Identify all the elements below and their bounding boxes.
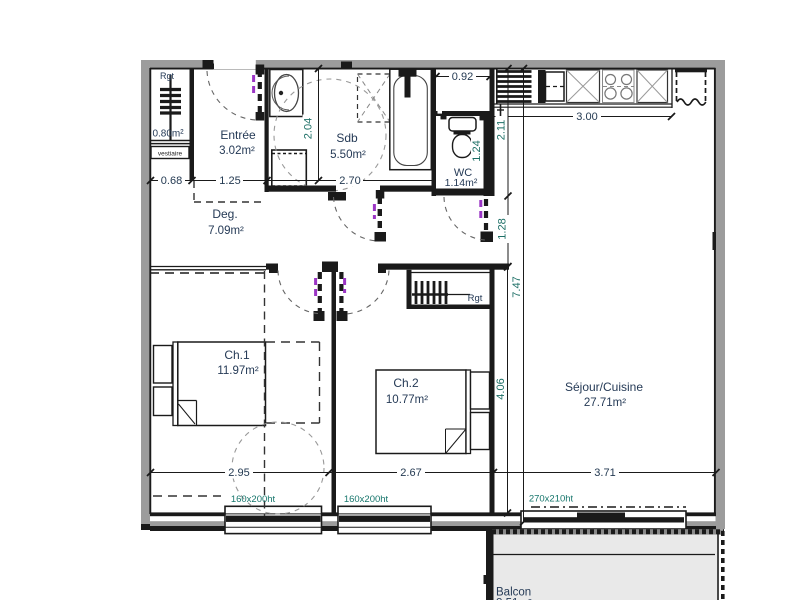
svg-text:3.71: 3.71 <box>594 467 615 479</box>
svg-text:4.06: 4.06 <box>495 378 507 399</box>
svg-text:0.92: 0.92 <box>452 71 473 83</box>
svg-text:11.97m²: 11.97m² <box>217 365 259 377</box>
svg-text:5.50m²: 5.50m² <box>330 149 366 161</box>
svg-text:27.71m²: 27.71m² <box>584 397 626 409</box>
svg-text:160x200ht: 160x200ht <box>344 494 389 505</box>
svg-text:1.25: 1.25 <box>219 175 240 187</box>
svg-text:Ch.1: Ch.1 <box>224 348 250 362</box>
svg-text:3.00: 3.00 <box>576 111 597 123</box>
svg-text:7.47: 7.47 <box>511 276 523 297</box>
svg-text:2.04: 2.04 <box>303 118 315 139</box>
svg-text:1.14m²: 1.14m² <box>445 177 478 189</box>
svg-text:270x210ht: 270x210ht <box>529 494 574 505</box>
svg-text:0.80m²: 0.80m² <box>152 129 184 140</box>
svg-text:Rgt: Rgt <box>468 293 483 304</box>
svg-text:Séjour/Cuisine: Séjour/Cuisine <box>565 380 643 394</box>
svg-text:7.09m²: 7.09m² <box>208 225 244 237</box>
svg-text:3.02m²: 3.02m² <box>219 145 255 157</box>
svg-text:vestiaire: vestiaire <box>158 151 183 158</box>
svg-text:10.77m²: 10.77m² <box>386 394 428 406</box>
svg-text:2.95: 2.95 <box>228 467 249 479</box>
svg-text:Rgt: Rgt <box>160 71 175 81</box>
svg-text:2.67: 2.67 <box>400 467 421 479</box>
svg-text:1.24: 1.24 <box>471 140 483 161</box>
svg-text:2.11: 2.11 <box>496 120 508 141</box>
svg-text:160x200ht: 160x200ht <box>231 494 276 505</box>
svg-text:Ch.2: Ch.2 <box>393 376 419 390</box>
svg-text:Deg.: Deg. <box>212 207 237 221</box>
svg-text:Sdb: Sdb <box>336 131 358 145</box>
svg-text:0.68: 0.68 <box>161 175 182 187</box>
svg-text:1.28: 1.28 <box>497 218 509 239</box>
svg-text:Entrée: Entrée <box>220 128 256 142</box>
svg-text:2.70: 2.70 <box>339 175 360 187</box>
